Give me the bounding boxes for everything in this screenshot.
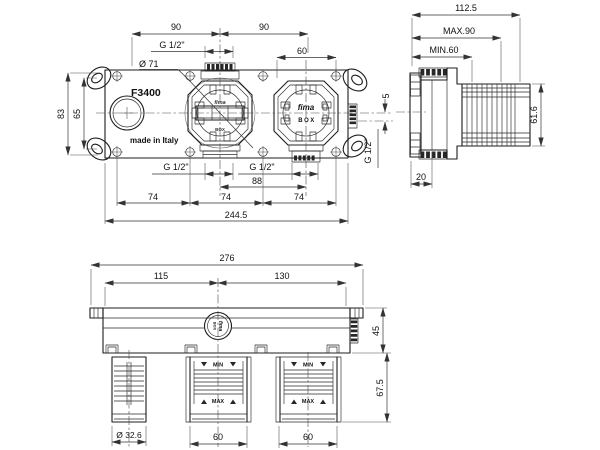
dim-body-depth: 45 [371, 326, 381, 336]
connector-right: MIN MAX [276, 357, 341, 422]
logo-bottom: BOX [213, 322, 217, 331]
dim-ear-spacing: 65 [72, 109, 82, 119]
dim-cyl-diameter: Ø 32.6 [116, 430, 142, 440]
dim-left-span: 115 [154, 271, 168, 281]
dim-conn-length: 67.5 [375, 379, 385, 397]
bottom-view: fima BOX MIN MAX MIN MAX [90, 253, 391, 448]
side-view: 112.5 MAX.90 MIN.60 61.6 20 [396, 3, 545, 188]
dim-conn-mid-width: 60 [213, 432, 223, 442]
side-dimensions: 112.5 MAX.90 MIN.60 61.6 20 [411, 3, 545, 188]
dim-port-side: G 1/2" [363, 138, 373, 163]
dim-port-top: G 1/2" [159, 40, 184, 50]
dim-span-left: 90 [171, 22, 181, 32]
dim-depth-max: MAX.90 [443, 26, 475, 36]
bottom-body: fima BOX [90, 308, 363, 353]
dim-port-spacing: 88 [252, 176, 262, 186]
dim-conn-right-width: 60 [303, 432, 313, 442]
side-body [410, 68, 462, 159]
side-rib-box [462, 84, 530, 146]
dim-screw-3: 74 [294, 192, 304, 202]
origin-label: made in Italy [130, 136, 179, 145]
dim-span-right: 90 [259, 22, 269, 32]
port-side-right [348, 104, 357, 128]
dim-plate-height: 83 [56, 109, 66, 119]
dim-side-offset: 5 [381, 93, 391, 98]
dim-box-width: 60 [297, 46, 307, 56]
dim-diameter: Ø 71 [139, 59, 159, 69]
dim-port-bottom-mid: G 1/2" [163, 162, 188, 172]
dim-depth-min: MIN.60 [429, 45, 458, 55]
front-view: fima BOX fima BOX [56, 22, 393, 224]
dim-plate-depth: 20 [416, 172, 426, 182]
dim-right-span: 130 [274, 271, 289, 281]
dim-screw-2: 74 [221, 192, 231, 202]
dim-screw-1: 74 [148, 192, 158, 202]
dim-height: 61.6 [529, 106, 539, 124]
dim-total-width: 244.5 [225, 210, 248, 220]
valve-right-brand-bottom: BOX [298, 118, 316, 124]
model-label: F3400 [131, 87, 161, 99]
mounting-ears [83, 63, 371, 165]
dim-depth-total: 112.5 [455, 3, 477, 13]
front-dimensions: 90 90 G 1/2" 60 Ø 71 83 65 5 G 1/2" G 1/… [56, 22, 391, 224]
connector-mid: MIN MAX [186, 357, 251, 422]
dim-total-width: 276 [219, 253, 234, 263]
technical-drawing: fima BOX fima BOX [0, 0, 600, 450]
dim-port-bottom-right: G 1/2" [249, 162, 274, 172]
